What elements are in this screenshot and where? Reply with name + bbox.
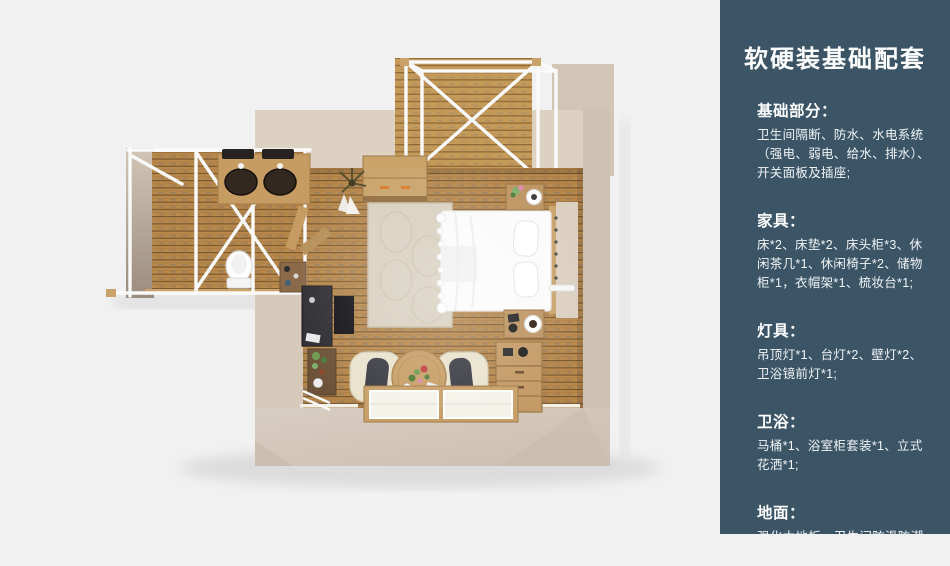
toilet	[226, 251, 252, 288]
sink	[264, 169, 296, 195]
slide: 软硬装基础配套 基础部分： 卫生间隔断、防水、水电系统（强电、弱电、给水、排水）…	[0, 0, 950, 534]
section-basics: 基础部分： 卫生间隔断、防水、水电系统（强电、弱电、给水、排水）、开关面板及插座…	[757, 99, 930, 183]
sidebar-sections: 基础部分： 卫生间隔断、防水、水电系统（强电、弱电、给水、排水）、开关面板及插座…	[720, 99, 950, 566]
canopy-foot	[400, 58, 409, 66]
faucet	[277, 163, 283, 169]
section-body: 马桶*1、浴室柜套装*1、立式花洒*1;	[757, 437, 930, 475]
section-body: 床*2、床垫*2、床头柜*3、休闲茶几*1、休闲椅子*2、储物柜*1，衣帽架*1…	[757, 236, 930, 293]
canopy-foot	[532, 58, 541, 66]
section-body: 卫生间隔断、防水、水电系统（强电、弱电、给水、排水）、开关面板及插座;	[757, 126, 930, 183]
sidebar-title: 软硬装基础配套	[720, 46, 950, 74]
section-furniture: 家具： 床*2、床垫*2、床头柜*3、休闲茶几*1、休闲椅子*2、储物柜*1，衣…	[757, 209, 930, 293]
section-bathroom: 卫浴： 马桶*1、浴室柜套装*1、立式花洒*1;	[757, 410, 930, 475]
section-body: 强化木地板、卫生间防滑防潮石塑板;	[757, 528, 930, 566]
section-body: 吊顶灯*1、台灯*2、壁灯*2、卫浴镜前灯*1;	[757, 346, 930, 384]
floorplan-area	[0, 0, 720, 534]
section-heading: 基础部分：	[757, 99, 930, 121]
faucet	[238, 163, 244, 169]
section-heading: 家具：	[757, 209, 930, 231]
sidebar: 软硬装基础配套 基础部分： 卫生间隔断、防水、水电系统（强电、弱电、给水、排水）…	[720, 0, 950, 534]
sink	[225, 169, 257, 195]
floorplan-render	[0, 0, 720, 534]
section-heading: 灯具：	[757, 319, 930, 341]
bathroom-wing	[106, 148, 332, 298]
light-overlay	[303, 168, 583, 408]
section-heading: 卫浴：	[757, 410, 930, 432]
section-heading: 地面：	[757, 501, 930, 523]
section-flooring: 地面： 强化木地板、卫生间防滑防潮石塑板;	[757, 501, 930, 566]
beam-cap	[106, 289, 116, 297]
section-lighting: 灯具： 吊顶灯*1、台灯*2、壁灯*2、卫浴镜前灯*1;	[757, 319, 930, 384]
double-sink-vanity	[218, 149, 310, 204]
